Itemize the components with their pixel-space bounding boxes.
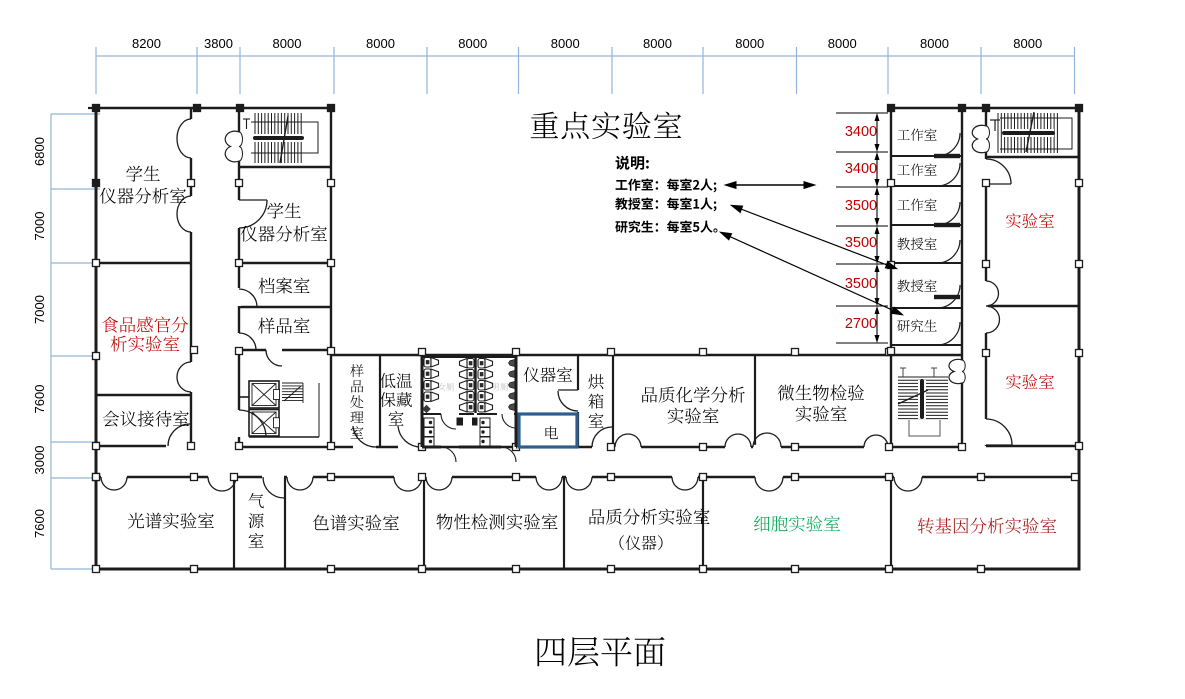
svg-text:7600: 7600 bbox=[32, 385, 47, 414]
svg-text:7600: 7600 bbox=[32, 509, 47, 538]
svg-text:3500: 3500 bbox=[845, 198, 877, 214]
svg-text:8000: 8000 bbox=[366, 36, 395, 51]
svg-text:3400: 3400 bbox=[845, 161, 877, 177]
svg-text:8000: 8000 bbox=[458, 36, 487, 51]
svg-text:7000: 7000 bbox=[32, 212, 47, 241]
svg-text:3500: 3500 bbox=[845, 235, 877, 251]
svg-text:8000: 8000 bbox=[643, 36, 672, 51]
svg-text:7000: 7000 bbox=[32, 295, 47, 324]
svg-text:8000: 8000 bbox=[735, 36, 764, 51]
svg-text:8000: 8000 bbox=[920, 36, 949, 51]
svg-text:8000: 8000 bbox=[1013, 36, 1042, 51]
svg-text:3500: 3500 bbox=[845, 276, 877, 292]
svg-text:3000: 3000 bbox=[32, 446, 47, 475]
svg-text:3800: 3800 bbox=[204, 36, 233, 51]
svg-text:8000: 8000 bbox=[551, 36, 580, 51]
svg-text:3400: 3400 bbox=[845, 124, 877, 140]
svg-text:8000: 8000 bbox=[828, 36, 857, 51]
svg-text:8000: 8000 bbox=[273, 36, 302, 51]
svg-text:8200: 8200 bbox=[132, 36, 161, 51]
svg-text:2700: 2700 bbox=[845, 316, 877, 332]
svg-text:6800: 6800 bbox=[32, 137, 47, 166]
